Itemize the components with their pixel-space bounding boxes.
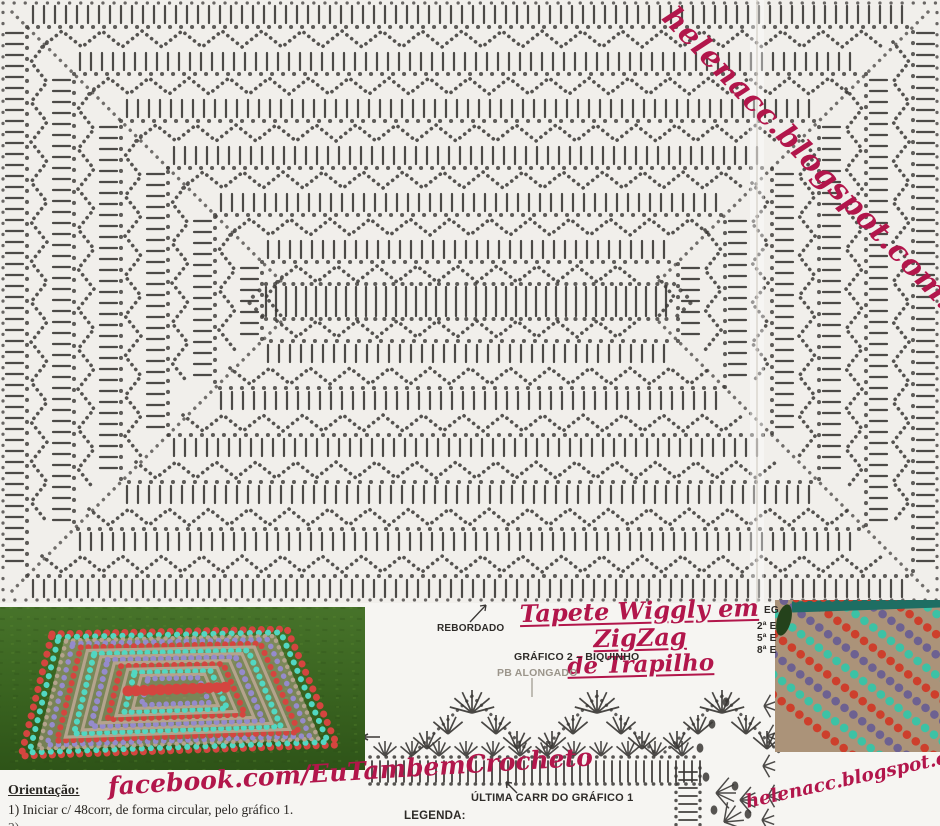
- label-rebordado: REBORDADO: [437, 623, 504, 634]
- side-label-eg: EG: [764, 605, 779, 616]
- rug-photo: [0, 607, 374, 770]
- label-pb-alongado: PB ALONGADO: [497, 667, 578, 679]
- orientation-step2-partial: 2) ........ .. ...... ........ ... .....…: [8, 820, 293, 826]
- label-legenda: LEGENDA:: [404, 810, 466, 822]
- label-grafico2-biquinho: GRÁFICO 2 – BIQUINHO: [514, 651, 639, 663]
- scanned-pattern-page: helenacc.blogspot.com.br Tapete Wiggly e…: [0, 0, 940, 826]
- label-ultima-carreira: ÚLTIMA CARR DO GRÁFICO 1: [471, 792, 633, 804]
- side-label-5e: 5ª E: [757, 633, 777, 644]
- pattern-title-line1: Tapete Wiggly em ZigZag: [499, 593, 780, 654]
- orientation-step1: 1) Iniciar c/ 48corr, de forma circular,…: [8, 802, 293, 818]
- side-label-2e: 2ª E: [757, 621, 777, 632]
- side-label-8e: 8ª E: [757, 645, 777, 656]
